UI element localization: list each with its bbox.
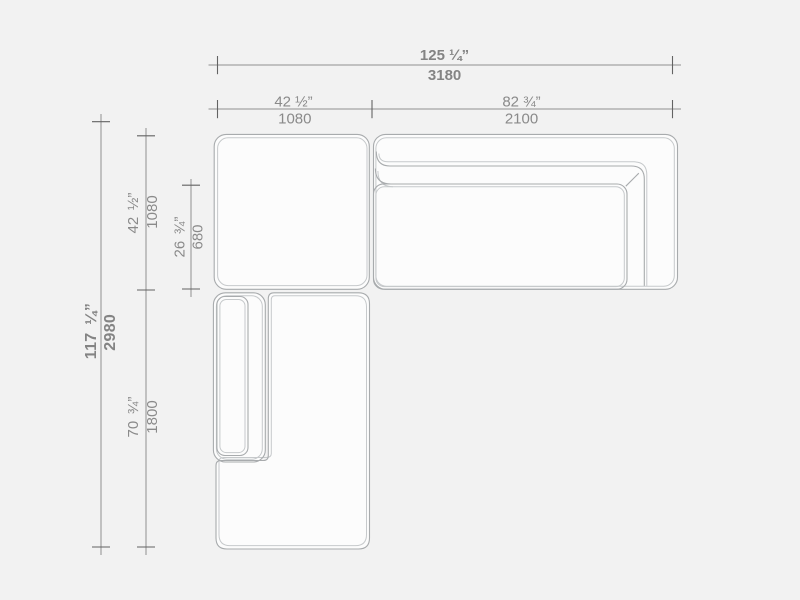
svg-text:125 ¼”: 125 ¼” [420,47,469,64]
svg-text:42 ½”: 42 ½” [125,193,142,234]
svg-text:82 ¾”: 82 ¾” [502,94,540,111]
svg-text:42 ½”: 42 ½” [274,94,312,111]
svg-text:680: 680 [190,224,207,249]
svg-text:1080: 1080 [144,195,161,228]
svg-text:26 ¾”: 26 ¾” [172,217,189,258]
svg-text:117 ¼”: 117 ¼” [83,303,100,359]
svg-text:70 ¾”: 70 ¾” [125,397,142,438]
svg-text:2980: 2980 [102,314,119,351]
svg-text:1800: 1800 [144,400,161,433]
svg-text:3180: 3180 [428,67,461,84]
svg-text:2100: 2100 [505,111,538,128]
svg-text:1080: 1080 [278,111,311,128]
